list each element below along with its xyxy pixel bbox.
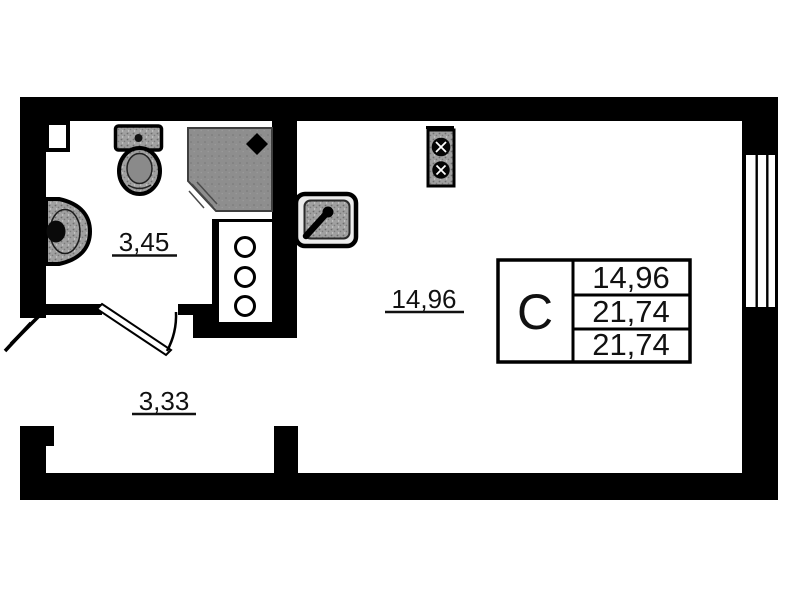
toilet-bowl-inner bbox=[127, 154, 152, 184]
area-label-living: 14,96 bbox=[391, 284, 456, 314]
table-value-row2: 21,74 bbox=[592, 294, 670, 329]
wall-bathroom-bottom bbox=[46, 304, 102, 315]
wall-stub-hall-right bbox=[274, 426, 298, 500]
area-label-bathroom: 3,45 bbox=[119, 227, 170, 257]
table-value-row1: 14,96 bbox=[592, 260, 670, 295]
wall-left bbox=[20, 97, 46, 318]
riser-pipe-circle bbox=[236, 268, 255, 287]
window-mullion bbox=[766, 155, 768, 307]
wall-strip-shaft-left bbox=[212, 219, 219, 338]
wall-door-jamb bbox=[178, 304, 193, 315]
window bbox=[746, 155, 775, 307]
wall-top bbox=[20, 97, 778, 121]
floor-plan-page: 3,45 14,96 3,33 С 14,96 21,74 21,74 bbox=[0, 0, 799, 600]
kitchen-sink-icon bbox=[296, 194, 356, 246]
entrance-door-line bbox=[5, 323, 31, 351]
riser-pipe-circle bbox=[236, 297, 255, 316]
window-mullion bbox=[756, 155, 758, 307]
riser-pipe-circle bbox=[236, 238, 255, 257]
wall-step-bottom-left bbox=[43, 426, 54, 446]
wall-bathroom-right bbox=[272, 121, 297, 338]
wash-basin-icon bbox=[46, 199, 90, 264]
area-label-hall: 3,33 bbox=[139, 386, 190, 416]
window-opening bbox=[746, 155, 775, 307]
wall-stub-bottom-left bbox=[20, 426, 46, 500]
riser-shaft-icon bbox=[219, 219, 272, 322]
table-value-row3: 21,74 bbox=[592, 327, 670, 362]
door-swing-arc bbox=[167, 312, 176, 351]
stove-two-burner-icon bbox=[426, 126, 454, 186]
basin-faucet bbox=[47, 221, 66, 243]
shower-cabin-icon bbox=[188, 128, 272, 211]
toilet-icon bbox=[116, 126, 162, 194]
unit-type-label: С bbox=[517, 284, 553, 340]
toilet-flush-button bbox=[135, 134, 143, 142]
vent-duct bbox=[49, 125, 66, 148]
wall-bottom bbox=[20, 473, 778, 500]
door-swing-icon bbox=[97, 304, 176, 355]
floor-plan: 3,45 14,96 3,33 С 14,96 21,74 21,74 bbox=[0, 0, 799, 600]
door-leaf bbox=[97, 304, 171, 355]
unit-info-table: С 14,96 21,74 21,74 bbox=[498, 260, 690, 362]
entrance-door-icon bbox=[5, 316, 39, 351]
sink-faucet bbox=[323, 207, 334, 218]
